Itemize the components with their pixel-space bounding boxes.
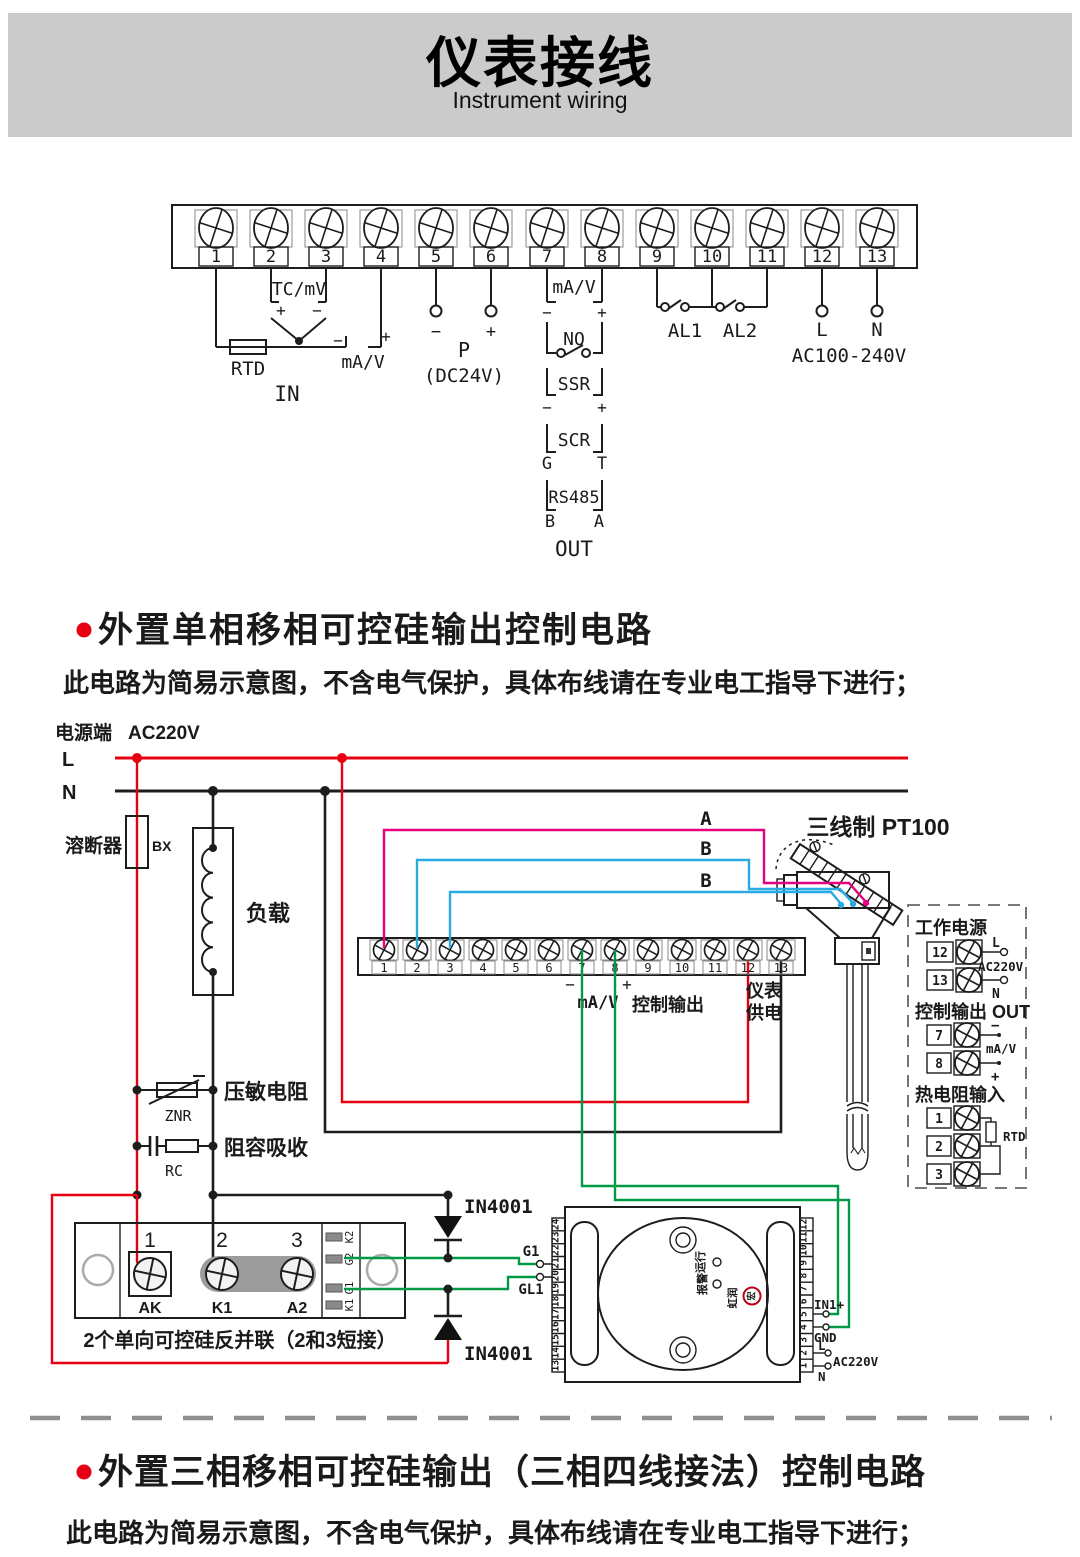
rs485-b: B bbox=[545, 512, 555, 532]
output-minus: − bbox=[542, 303, 552, 322]
wire-a-label: A bbox=[700, 808, 712, 830]
sensor-neck bbox=[806, 908, 890, 938]
output-stack: mA/V − + NO SSR − + SCR G T RS485 B A OU… bbox=[542, 268, 607, 561]
scr-g: G bbox=[542, 454, 552, 474]
meter-supply-label2: 供电 bbox=[745, 1002, 782, 1023]
wire-b1-label: B bbox=[700, 838, 711, 860]
mod-t16: 16 bbox=[551, 1321, 562, 1333]
brand-label: 虹润 bbox=[726, 1288, 739, 1309]
panel-out-plus: + bbox=[991, 1069, 999, 1085]
line-n-label: N bbox=[62, 782, 76, 804]
mod-t23: 23 bbox=[551, 1231, 562, 1243]
rc-code: RC bbox=[165, 1162, 183, 1180]
rtd-label: RTD bbox=[231, 358, 265, 380]
mod-t19: 19 bbox=[551, 1283, 562, 1295]
top-terminal-6: 6 bbox=[486, 247, 496, 267]
mod-t13: 13 bbox=[551, 1360, 562, 1372]
output-ma-v-label: mA/V bbox=[552, 277, 596, 298]
ssr-plus: + bbox=[597, 398, 607, 417]
top-terminal-4: 4 bbox=[376, 247, 386, 267]
mod-t18: 18 bbox=[551, 1295, 562, 1307]
rc-snubber: RC 阻容吸收 bbox=[133, 1136, 309, 1180]
strip-terminal-1: 1 bbox=[380, 961, 387, 975]
mod-r9: 9 bbox=[799, 1260, 810, 1266]
scr-label: SCR bbox=[558, 430, 591, 451]
znr-code: ZNR bbox=[164, 1107, 192, 1125]
input-plus: + bbox=[381, 327, 391, 346]
scr-caption: 2个单向可控硅反并联（2和3短接） bbox=[83, 1328, 396, 1352]
section2-note: 此电路为简易示意图，不含电气保护，具体布线请在专业电工指导下进行； bbox=[66, 1518, 924, 1548]
top-terminal-1: 1 bbox=[211, 247, 221, 267]
module-l-label: L bbox=[818, 1338, 826, 1353]
run-label: 运行 bbox=[693, 1251, 707, 1273]
pt100-sensor: 三线制 PT100 bbox=[776, 814, 950, 1170]
module-right-labels: IN1+ GND L AC220V N bbox=[813, 1297, 879, 1384]
module-ac-label: AC220V bbox=[833, 1354, 879, 1369]
input-wiring: TC/mV + − RTD − mA/V + IN bbox=[216, 268, 391, 406]
scr-num-3: 3 bbox=[291, 1229, 303, 1252]
panel-out-title: 控制输出 OUT bbox=[915, 1001, 1030, 1022]
supply-l-loop bbox=[342, 758, 748, 1102]
top-terminal-10: 10 bbox=[702, 247, 722, 267]
mod-r6: 6 bbox=[799, 1298, 810, 1304]
top-terminal-3: 3 bbox=[321, 247, 331, 267]
input-ma-v-label: mA/V bbox=[341, 352, 385, 373]
top-terminal-8: 8 bbox=[597, 247, 607, 267]
left-slot bbox=[571, 1222, 598, 1365]
section2-title: 外置三相移相可控硅输出（三相四线接法）控制电路 bbox=[98, 1453, 926, 1492]
terminal-screw-icons bbox=[194, 204, 900, 253]
right-slot bbox=[767, 1222, 794, 1365]
out-label: OUT bbox=[555, 537, 593, 561]
mod-r3: 3 bbox=[799, 1337, 810, 1343]
panel-ma-v: mA/V bbox=[986, 1041, 1017, 1056]
strip-ma-v: mA/V bbox=[578, 993, 619, 1013]
section1-note: 此电路为简易示意图，不含电气保护，具体布线请在专业电工指导下进行； bbox=[63, 668, 921, 698]
mod-t14: 14 bbox=[551, 1347, 562, 1359]
in1-label: IN1+ bbox=[814, 1297, 845, 1312]
tc-mv-label: TC/mV bbox=[272, 279, 326, 300]
scr-pin-k1: K1 bbox=[344, 1299, 356, 1312]
line-l-label: L bbox=[62, 749, 74, 771]
scr-num-1: 1 bbox=[144, 1229, 156, 1252]
rc-label: 阻容吸收 bbox=[224, 1136, 308, 1160]
scr-ak-label: AK bbox=[138, 1300, 162, 1317]
load-label: 负载 bbox=[246, 901, 290, 926]
panel-rtd-title: 热电阻输入 bbox=[915, 1084, 1005, 1105]
rs485-a: A bbox=[594, 512, 604, 532]
al2-label: AL2 bbox=[723, 320, 757, 342]
input-minus: − bbox=[333, 331, 343, 350]
strip-plus: + bbox=[622, 975, 632, 994]
panel-terminal-7: 7 bbox=[935, 1029, 943, 1044]
strip-terminal-13: 13 bbox=[774, 961, 788, 975]
mains-n: N bbox=[871, 319, 882, 341]
mod-r5: 5 bbox=[799, 1311, 810, 1317]
mod-t15: 15 bbox=[551, 1334, 562, 1346]
mod-r4: 4 bbox=[799, 1324, 810, 1330]
power-voltage-label: AC220V bbox=[128, 723, 200, 744]
module-left-terminals: 24 23 22 21 20 19 18 17 16 15 14 13 bbox=[551, 1218, 562, 1371]
mod-t22: 22 bbox=[551, 1244, 562, 1255]
panel-rtd-code: RTD bbox=[1003, 1129, 1026, 1144]
scr-module: 1 2 3 AK K1 A2 K2 G2 G1 K1 2个单向可控硅反并联（2和… bbox=[75, 1223, 405, 1352]
strip-terminal-2: 2 bbox=[413, 961, 420, 975]
panel-power-title: 工作电源 bbox=[915, 917, 987, 938]
top-terminal-block: 1 2 3 4 5 6 7 8 9 10 11 12 13 bbox=[172, 204, 917, 561]
mod-r10: 10 bbox=[799, 1244, 810, 1256]
tc-minus: − bbox=[312, 301, 322, 320]
fuse-code: BX bbox=[152, 838, 172, 854]
wire-b2-label: B bbox=[700, 870, 711, 892]
section1-heading: 外置单相移相可控硅输出控制电路 此电路为简易示意图，不含电气保护，具体布线请在专… bbox=[63, 611, 921, 698]
alarm-label: 报警 bbox=[695, 1273, 709, 1295]
mount-hole-left bbox=[83, 1255, 113, 1285]
p-label: P bbox=[458, 338, 470, 362]
section1-title: 外置单相移相可控硅输出控制电路 bbox=[98, 611, 653, 650]
wiring-diagram-svg: 1 2 3 4 5 6 7 8 9 10 11 12 13 bbox=[0, 0, 1080, 1557]
page: 仪表接线 Instrument wiring bbox=[0, 0, 1080, 1557]
tc-plus: + bbox=[276, 301, 286, 320]
strip-terminal-10: 10 bbox=[675, 961, 689, 975]
panel-rtd-resistor bbox=[986, 1122, 996, 1142]
mod-r1: 1 bbox=[799, 1362, 810, 1368]
panel-l: L bbox=[992, 936, 1000, 951]
diode-bottom-label: IN4001 bbox=[464, 1343, 533, 1365]
bullet-icon bbox=[77, 1465, 92, 1480]
varistor: ZNR 压敏电阻 bbox=[133, 1076, 309, 1125]
top-terminal-9: 9 bbox=[652, 247, 662, 267]
scr-k1-label: K1 bbox=[212, 1300, 233, 1317]
scr-a2-label: A2 bbox=[287, 1300, 308, 1317]
strip-terminal-3: 3 bbox=[446, 961, 453, 975]
in-label: IN bbox=[274, 382, 299, 406]
mod-r11: 11 bbox=[799, 1231, 810, 1243]
mod-r2: 2 bbox=[799, 1350, 810, 1356]
meter-supply-label1: 仪表 bbox=[745, 980, 783, 1001]
mains-l: L bbox=[816, 319, 827, 341]
al1-label: AL1 bbox=[668, 320, 702, 342]
strip-minus: − bbox=[565, 975, 575, 994]
g1-label: G1 bbox=[523, 1244, 540, 1260]
scr-pin-k2: K2 bbox=[344, 1231, 356, 1244]
bullet-icon bbox=[77, 623, 92, 638]
top-terminal-7: 7 bbox=[542, 247, 552, 267]
top-terminal-12: 12 bbox=[812, 247, 832, 267]
mod-r8: 8 bbox=[799, 1273, 810, 1279]
output-plus: + bbox=[597, 303, 607, 322]
top-terminal-5: 5 bbox=[431, 247, 441, 267]
brand-logo-glyph: 宏 bbox=[745, 1291, 756, 1300]
mod-t21: 21 bbox=[551, 1257, 562, 1269]
p-minus: − bbox=[431, 322, 441, 342]
fuse-label: 溶断器 bbox=[65, 834, 123, 857]
panel-n: N bbox=[992, 987, 1000, 1002]
scr-t: T bbox=[597, 454, 607, 474]
circuit-diagram: 电源端 AC220V L N 溶断器 BX 负载 bbox=[52, 721, 1030, 1384]
mod-r7: 7 bbox=[799, 1286, 810, 1292]
reference-panel: 工作电源 12 L AC220V 13 N 控制输出 OUT 7 − mA/V … bbox=[908, 905, 1030, 1190]
module-dial bbox=[598, 1218, 768, 1370]
terminal-numbers: 1 2 3 4 5 6 7 8 9 10 11 12 13 bbox=[199, 247, 894, 267]
top-terminal-2: 2 bbox=[266, 247, 276, 267]
ssr-label: SSR bbox=[558, 374, 591, 395]
trigger-module: 运行 报警 虹润 宏 24 23 22 21 20 19 18 17 16 1 bbox=[551, 1207, 879, 1384]
panel-terminal-13: 13 bbox=[932, 974, 948, 989]
load-coil bbox=[202, 848, 213, 972]
pt100-title: 三线制 PT100 bbox=[806, 814, 949, 840]
diode-top-label: IN4001 bbox=[464, 1196, 533, 1218]
panel-terminal-3: 3 bbox=[935, 1168, 943, 1183]
section2-heading: 外置三相移相可控硅输出（三相四线接法）控制电路 此电路为简易示意图，不含电气保护… bbox=[66, 1453, 926, 1548]
mod-r12: 12 bbox=[799, 1219, 810, 1230]
panel-terminal-12: 12 bbox=[932, 946, 948, 961]
mod-t17: 17 bbox=[551, 1308, 562, 1319]
znr-label: 压敏电阻 bbox=[224, 1080, 308, 1104]
mains-voltage: AC100-240V bbox=[792, 345, 906, 367]
p-plus: + bbox=[486, 322, 496, 342]
strip-terminal-6: 6 bbox=[545, 961, 552, 975]
power-end-label: 电源端 bbox=[55, 721, 112, 744]
strip-terminal-9: 9 bbox=[644, 961, 651, 975]
scr-num-2: 2 bbox=[216, 1229, 228, 1252]
top-terminal-13: 13 bbox=[867, 247, 887, 267]
mod-t24: 24 bbox=[551, 1218, 562, 1230]
rs485-label: RS485 bbox=[548, 488, 599, 508]
strip-terminal-4: 4 bbox=[479, 961, 486, 975]
no-label: NO bbox=[563, 329, 585, 350]
ssr-minus: − bbox=[542, 398, 552, 417]
mount-hole-right bbox=[367, 1255, 397, 1285]
alarm-led bbox=[713, 1280, 721, 1288]
control-output-label: 控制输出 bbox=[632, 994, 704, 1015]
panel-out-minus: − bbox=[991, 1018, 999, 1034]
control-wires bbox=[582, 950, 849, 1327]
strip-terminal-12: 12 bbox=[741, 961, 755, 975]
alarm-wiring: AL1 AL2 bbox=[657, 268, 767, 342]
panel-terminal-1: 1 bbox=[935, 1112, 943, 1127]
diode-bottom: IN4001 bbox=[434, 1288, 533, 1365]
mod-t20: 20 bbox=[551, 1270, 562, 1282]
gl1-label: GL1 bbox=[518, 1282, 543, 1298]
mains-wiring: L N AC100-240V bbox=[792, 268, 906, 367]
dc24v-label: (DC24V) bbox=[424, 365, 504, 387]
run-led bbox=[713, 1258, 721, 1266]
module-n-label: N bbox=[818, 1369, 826, 1384]
strip-terminal-11: 11 bbox=[708, 961, 722, 975]
panel-terminal-8: 8 bbox=[935, 1057, 943, 1072]
panel-terminal-2: 2 bbox=[935, 1140, 943, 1155]
panel-ac220v: AC220V bbox=[978, 959, 1024, 974]
sensor-probe bbox=[847, 964, 868, 1170]
strip-terminal-5: 5 bbox=[512, 961, 519, 975]
top-terminal-11: 11 bbox=[757, 247, 777, 267]
diode-top-lead bbox=[213, 1195, 448, 1258]
power-feed-wiring: − + P (DC24V) bbox=[424, 268, 504, 387]
